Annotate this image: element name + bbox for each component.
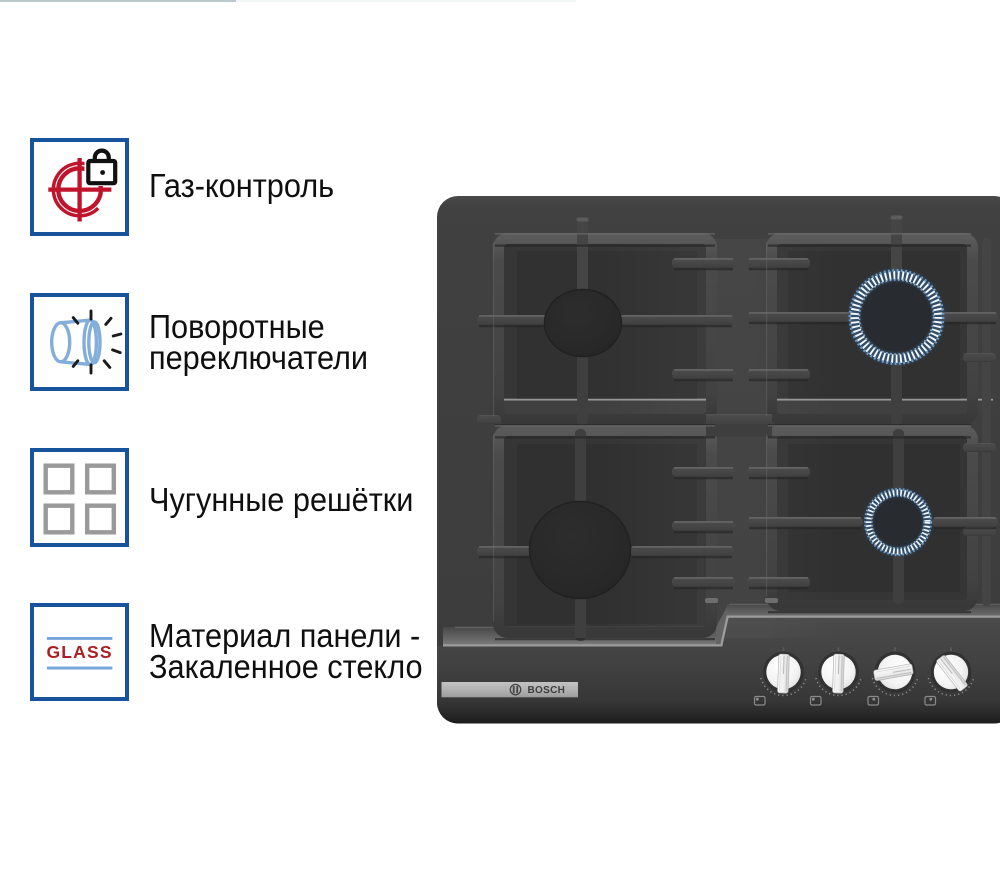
svg-text:GLASS: GLASS [46,642,112,662]
svg-text:BOSCH: BOSCH [528,685,566,696]
